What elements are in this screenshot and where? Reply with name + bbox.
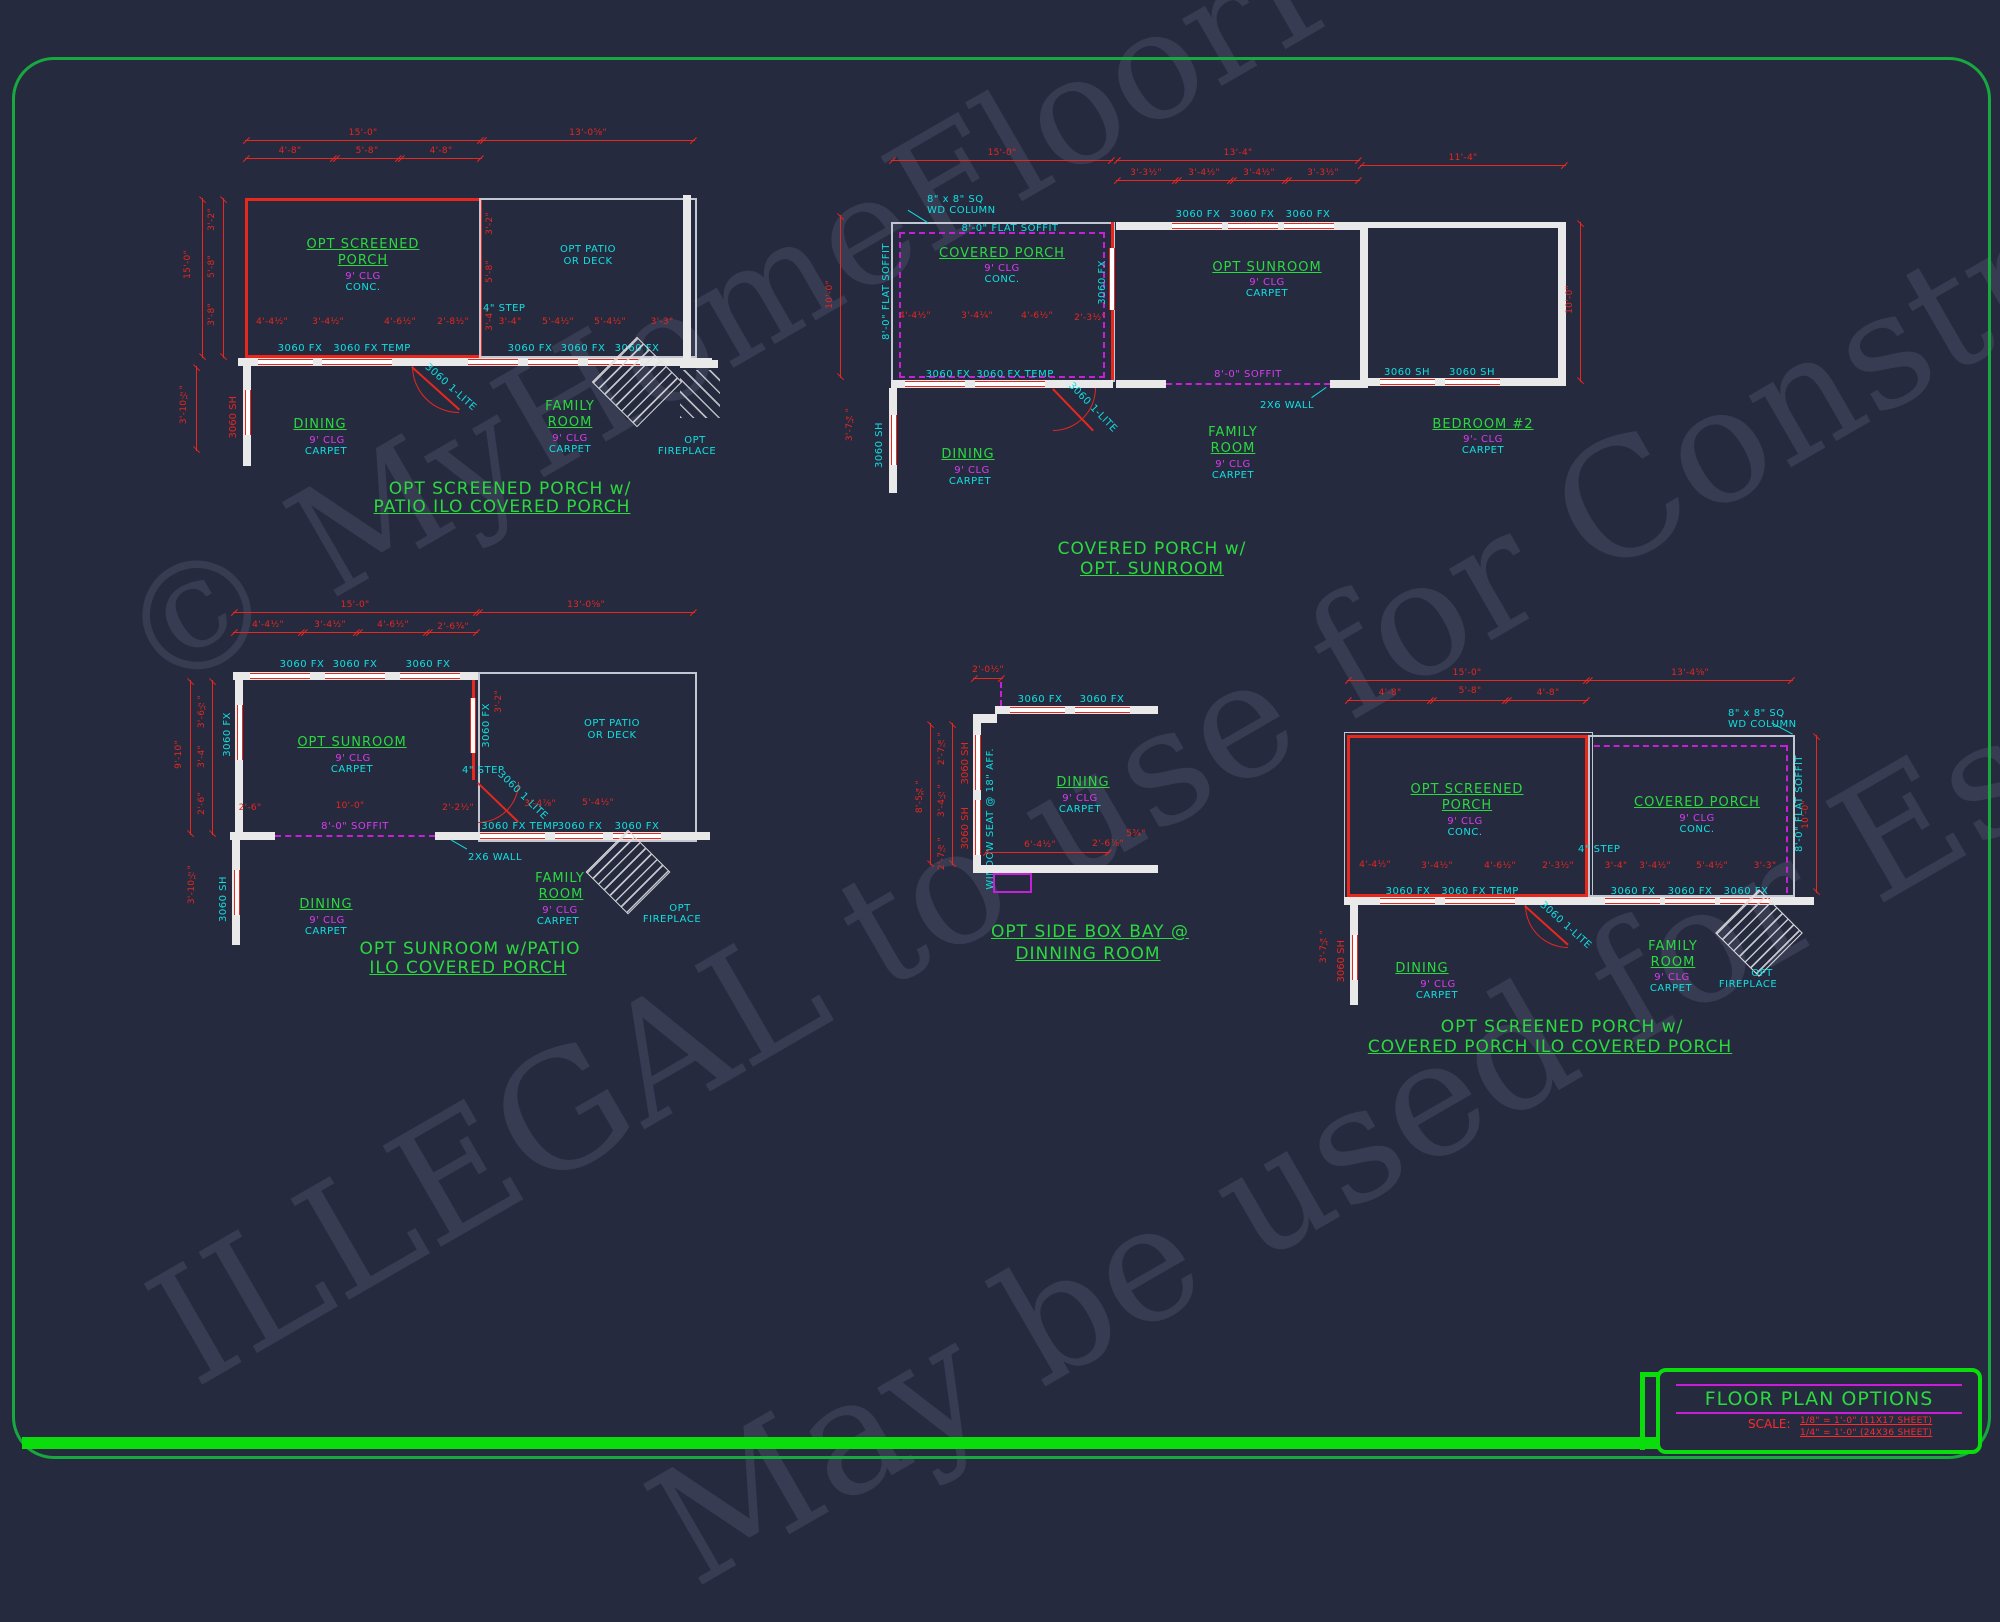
window <box>258 359 313 365</box>
window-label: 3060 FX <box>1018 694 1063 705</box>
floor-note: CARPET <box>1416 990 1458 1001</box>
dimension-label: 15'-0" <box>1453 669 1482 679</box>
dim-line <box>1116 180 1177 181</box>
dimension-label: 3'-4½" <box>1421 862 1453 872</box>
window-label: 3060 FX TEMP <box>481 821 559 832</box>
sheet-title: FLOOR PLAN OPTIONS <box>1705 1389 1934 1410</box>
ceiling-note: 9' CLG <box>984 263 1020 274</box>
floor-note: CONC. <box>1680 824 1715 835</box>
window <box>975 381 1045 387</box>
wall-note: 2X6 WALL <box>1260 400 1314 411</box>
dim-line <box>233 632 303 633</box>
ceiling-note: 9' CLG <box>1062 793 1098 804</box>
dimension-label: 2'-7⅞" <box>938 837 948 870</box>
ceiling-note: 9' CLG <box>1679 813 1715 824</box>
floor-note: CARPET <box>305 446 347 457</box>
scale-value: 1/4" = 1'-0" (24X36 SHEET) <box>1800 1429 1932 1439</box>
window <box>322 359 392 365</box>
house-wall <box>680 360 718 368</box>
room-label: OPT SUNROOM <box>297 736 406 750</box>
room-label: BEDROOM #2 <box>1432 418 1533 432</box>
dim-line <box>245 158 335 159</box>
dimension-label: 3'-2" <box>208 208 218 231</box>
column-note: WD COLUMN <box>927 205 996 216</box>
room-label: DINING <box>299 898 352 912</box>
dimension-label: 3'-4" <box>198 745 208 768</box>
room-label: FAMILY <box>1648 940 1698 954</box>
dimension-label: 2'-3½" <box>1542 862 1574 872</box>
dimension-label: 8'-5¾" <box>916 780 926 813</box>
ceiling-note: 9' CLG <box>542 905 578 916</box>
window <box>470 698 476 753</box>
window-label: 3060 FX <box>406 659 451 670</box>
window-label: 3060 FX <box>615 821 660 832</box>
dim-line <box>1116 160 1360 161</box>
dimension-label: 3'-4½" <box>1639 862 1671 872</box>
dimension-label: 10'-0" <box>826 280 836 309</box>
dimension-label: 3'-4½" <box>938 784 948 817</box>
soffit-note: 8'-0" FLAT SOFFIT <box>881 243 892 340</box>
room-label: DINING <box>293 418 346 432</box>
ceiling-note: 9' CLG <box>1215 459 1251 470</box>
patio-label: OPT PATIO <box>584 718 640 729</box>
window <box>1284 223 1334 229</box>
dimension-label: 4'-8" <box>1379 689 1402 699</box>
dimension-label: 2'-0½" <box>972 666 1004 676</box>
ceiling-note: 9' CLG <box>309 435 345 446</box>
window <box>1075 707 1130 713</box>
room-label: ROOM <box>1211 442 1256 456</box>
window <box>480 833 545 839</box>
titleblock-rule <box>1676 1412 1962 1414</box>
ceiling-note: 9'- CLG <box>1463 434 1503 445</box>
dimension-label: 3'-4½" <box>1243 169 1275 179</box>
dim-line <box>985 852 1110 853</box>
dimension-label: 3'-10½" <box>188 865 198 904</box>
window <box>325 673 385 679</box>
dim-line <box>973 678 1003 679</box>
caption-line-2: DINNING ROOM <box>1015 945 1160 964</box>
dimension-label: 4'-8" <box>279 147 302 157</box>
window <box>528 359 578 365</box>
dim-line <box>1347 680 1588 681</box>
window-label: 3060 FX <box>280 659 325 670</box>
dimension-label: 4'-6½" <box>377 621 409 631</box>
fireplace-note: FIREPLACE <box>643 914 701 925</box>
window <box>1605 898 1660 904</box>
dimension-label: 9'-10" <box>175 740 185 769</box>
dimension-label: 3'-8" <box>208 303 218 326</box>
dimension-label: 5'-4½" <box>594 318 626 328</box>
soffit-dashed <box>1166 383 1330 385</box>
dimension-label: 3'-4½" <box>1188 169 1220 179</box>
dim-line <box>952 723 953 865</box>
window-label: 3060 FX <box>1230 209 1275 220</box>
window-label: 3060 FX <box>926 369 971 380</box>
dim-line <box>891 160 1113 161</box>
dim-line <box>358 632 428 633</box>
dimension-label: 4'-6½" <box>384 318 416 328</box>
window-label: 3060 FX <box>508 343 553 354</box>
wall <box>1330 380 1368 388</box>
window-label: 3060 SH <box>1449 367 1495 378</box>
dim-line <box>212 680 213 835</box>
dim-line <box>400 158 482 159</box>
dimension-label: 3'-4¼" <box>961 312 993 322</box>
floor-note: CARPET <box>1650 983 1692 994</box>
dim-line <box>1287 180 1360 181</box>
dimension-label: 10'-0" <box>1566 285 1576 314</box>
soffit-note: 8'-0" SOFFIT <box>321 821 389 832</box>
room-label: ROOM <box>539 888 584 902</box>
dimension-label: 3'-7¼" <box>1320 930 1330 963</box>
dimension-label: 5'-8" <box>208 255 218 278</box>
dimension-label: 3'-10½" <box>180 385 190 424</box>
window-label: 3060 FX <box>1097 260 1108 305</box>
ceiling-note: 9' CLG <box>335 753 371 764</box>
dim-line <box>1588 680 1793 681</box>
ceiling-note: 9' CLG <box>1249 277 1285 288</box>
soffit-note: 8'-0" SOFFIT <box>1214 369 1282 380</box>
floor-note: CARPET <box>1462 445 1504 456</box>
dimension-label: 15'-0" <box>988 149 1017 159</box>
caption-line-1: COVERED PORCH w/ <box>1058 540 1247 559</box>
window-label: 3060 FX <box>278 343 323 354</box>
dim-line <box>190 680 191 835</box>
dim-line <box>478 612 695 613</box>
window <box>1228 223 1278 229</box>
room-label: OPT SCREENED <box>1411 783 1524 797</box>
caption-line-1: OPT SIDE BOX BAY @ <box>991 923 1189 942</box>
window-label: 3060 FX TEMP <box>976 369 1054 380</box>
window <box>975 735 981 790</box>
house-wall <box>1368 222 1566 228</box>
dimension-label: 5'-4½" <box>1696 862 1728 872</box>
floor-note: CONC. <box>346 282 381 293</box>
fireplace-note: OPT <box>669 903 691 914</box>
dim-line <box>930 723 931 865</box>
window <box>250 673 310 679</box>
room-label: COVERED PORCH <box>939 247 1065 261</box>
floor-note: CONC. <box>985 274 1020 285</box>
plan-screened-covered-porch: 15'-0" 13'-4⅝" 4'-8" 5'-8" 4'-8" 8" x 8"… <box>1300 650 1860 1070</box>
floor-note: CONC. <box>1448 827 1483 838</box>
wall <box>1116 380 1166 388</box>
step-note: 4" STEP <box>483 303 525 314</box>
dimension-label: 4'-8" <box>430 147 453 157</box>
dimension-label: 3'-7¼" <box>846 408 856 441</box>
leader-line <box>1311 387 1327 398</box>
window <box>1352 935 1358 980</box>
ceiling-note: 9' CLG <box>1447 816 1483 827</box>
dimension-label: 3'-2" <box>486 212 496 235</box>
dimension-label: 2'-8½" <box>437 318 469 328</box>
dimension-label: 10'-0" <box>1802 800 1812 829</box>
dim-line <box>1816 735 1817 893</box>
caption-line-1: OPT SCREENED PORCH w/ <box>1441 1018 1684 1037</box>
dimension-label: 2'-3½" <box>1074 314 1106 324</box>
caption-line-2: OPT. SUNROOM <box>1080 560 1224 579</box>
dimension-label: 5¾" <box>1126 830 1146 840</box>
dim-line <box>202 198 203 358</box>
room-label: OPT SUNROOM <box>1212 261 1321 275</box>
dimension-label: 3'-4" <box>1605 862 1628 872</box>
dimension-label: 3'-6½" <box>198 695 208 728</box>
step-note: 4" STEP <box>1578 844 1620 855</box>
window-label: 3060 FX TEMP <box>333 343 411 354</box>
window-label: 3060 FX <box>1080 694 1125 705</box>
floor-note: CARPET <box>305 926 347 937</box>
floor-note: CARPET <box>331 764 373 775</box>
dimension-label: 3'-3" <box>651 318 674 328</box>
floor-note: CARPET <box>549 444 591 455</box>
dimension-label: 11'-4" <box>1449 154 1478 164</box>
window-label: 3060 FX <box>1386 886 1431 897</box>
dim-line <box>233 612 478 613</box>
plan-screened-porch-patio: 15'-0" 13'-0⅝" 4'-8" 5'-8" 4'-8" 15'-0" … <box>150 100 770 520</box>
dimension-label: 13'-0⅝" <box>567 601 605 611</box>
dim-line <box>1232 180 1287 181</box>
dimension-label: 4'-8" <box>1537 689 1560 699</box>
dimension-label: 4'-4½" <box>256 318 288 328</box>
plan-sunroom-patio: 15'-0" 13'-0⅝" 4'-4½" 3'-4½" 4'-6½" 2'-6… <box>150 590 790 990</box>
dim-line <box>1507 700 1588 701</box>
dimension-label: 5'-8" <box>1459 687 1482 697</box>
dim-line <box>1360 165 1566 166</box>
titleblock-connector <box>1640 1372 1645 1450</box>
caption-line-2: COVERED PORCH ILO COVERED PORCH <box>1368 1038 1732 1057</box>
dimension-label: 13'-4⅝" <box>1671 669 1709 679</box>
dimension-label: 3'-3" <box>1754 862 1777 872</box>
window-label: 3060 SH <box>218 876 229 922</box>
ceiling-note: 9' CLG <box>552 433 588 444</box>
window-label: 3060 FX <box>333 659 378 670</box>
wall-note: 2X6 WALL <box>468 852 522 863</box>
soffit-note: 8'-0" FLAT SOFFIT <box>961 223 1058 234</box>
dimension-label: 3'-4½" <box>314 621 346 631</box>
ceiling-note: 9' CLG <box>1420 979 1456 990</box>
room-label: COVERED PORCH <box>1634 796 1760 810</box>
soffit-dashed <box>275 835 435 837</box>
dim-line <box>482 140 695 141</box>
room-label: DINING <box>1395 962 1448 976</box>
window-seat-outline <box>993 873 1032 893</box>
window-label: 3060 FX <box>1611 886 1656 897</box>
window <box>905 381 965 387</box>
dim-line <box>1580 222 1581 382</box>
room-label: ROOM <box>1651 956 1696 970</box>
scale-label: SCALE: <box>1748 1418 1791 1431</box>
dimension-label: 15'-0" <box>184 250 194 279</box>
wall <box>230 832 275 840</box>
dimension-label: 4'-4½" <box>1359 861 1391 871</box>
room-label: ROOM <box>548 416 593 430</box>
window-label: 3060 FX <box>1176 209 1221 220</box>
caption-line-1: OPT SUNROOM w/PATIO <box>360 940 581 959</box>
window-label: 3060 SH <box>874 422 885 468</box>
dimension-label: 5'-8" <box>486 260 496 283</box>
dim-line <box>1347 700 1432 701</box>
dimension-label: 3'-3½" <box>1307 169 1339 179</box>
caption-line-2: ILO COVERED PORCH <box>369 959 566 978</box>
room-label: PORCH <box>338 254 388 268</box>
dim-line <box>1177 180 1232 181</box>
soffit-dashed <box>1594 745 1786 747</box>
dimension-label: 2'-7⅞" <box>938 732 948 765</box>
leader-line <box>451 840 467 850</box>
window <box>555 833 603 839</box>
window <box>1380 379 1435 385</box>
dim-line <box>303 632 358 633</box>
room-label: OPT SCREENED <box>307 238 420 252</box>
window <box>1010 707 1065 713</box>
titleblock-rule <box>1676 1384 1962 1386</box>
window-label: 3060 SH <box>1384 367 1430 378</box>
room-label: FAMILY <box>535 872 585 886</box>
window-label: 3060 SH <box>1336 940 1347 983</box>
deck-hatch <box>680 370 720 418</box>
window <box>891 415 897 465</box>
dimension-label: 4'-4½" <box>899 312 931 322</box>
dim-line <box>1432 700 1507 701</box>
ceiling-note: 9' CLG <box>345 271 381 282</box>
window <box>237 705 243 760</box>
fireplace-symbol <box>586 830 671 915</box>
dimension-label: 2'-2½" <box>442 804 474 814</box>
plan-covered-porch-sunroom: 10'-0" 8'-0" FLAT SOFFIT 8'-0" FLAT SOFF… <box>680 140 1600 600</box>
window <box>234 870 240 915</box>
dimension-label: 5'-8" <box>356 147 379 157</box>
floor-note: CARPET <box>1059 804 1101 815</box>
ceiling-note: 9' CLG <box>309 915 345 926</box>
window <box>1380 898 1435 904</box>
window-label: 3060 FX <box>222 712 233 757</box>
window <box>400 673 460 679</box>
window-label: 3060 SH <box>228 396 239 439</box>
floor-note: CARPET <box>1212 470 1254 481</box>
soffit-dashed <box>1786 745 1788 893</box>
dim-line <box>840 215 841 378</box>
room-label: DINING <box>1056 776 1109 790</box>
dimension-label: 4'-6½" <box>1484 862 1516 872</box>
dimension-label: 3'-4⅞" <box>524 800 556 810</box>
ceiling-note: 9' CLG <box>1654 972 1690 983</box>
dimension-label: 2'-6" <box>198 792 208 815</box>
dim-line <box>223 198 224 358</box>
dimension-label: 13'-4" <box>1224 149 1253 159</box>
dimension-label: 10'-0" <box>336 802 365 812</box>
dimension-label: 6'-4½" <box>1024 841 1056 851</box>
dimension-label: 4'-4½" <box>252 621 284 631</box>
dimension-label: 3'-3½" <box>1130 169 1162 179</box>
window-label: 3060 FX <box>561 343 606 354</box>
fireplace-note: FIREPLACE <box>1719 979 1777 990</box>
column-note: 8" x 8" SQ <box>1728 708 1785 719</box>
caption-line-2: PATIO ILO COVERED PORCH <box>374 498 631 517</box>
caption-line-1: OPT SCREENED PORCH w/ <box>389 480 632 499</box>
dim-line <box>245 140 482 141</box>
cad-sheet: { "colors":{"red":"#e8271d","green":"#2b… <box>0 0 2000 1500</box>
window <box>1172 223 1222 229</box>
wall <box>1360 222 1368 388</box>
window <box>975 800 981 855</box>
dimension-label: 2'-6⅞" <box>1092 840 1124 850</box>
dimension-label: 3'-4" <box>499 318 522 328</box>
dimension-label: 15'-0" <box>349 129 378 139</box>
dimension-label: 5'-4½" <box>542 318 574 328</box>
room-label: FAMILY <box>545 400 595 414</box>
floor-note: CARPET <box>1246 288 1288 299</box>
window-label: 3060 SH <box>960 742 971 785</box>
window-label: 3060 FX <box>1668 886 1713 897</box>
exterior-wall <box>973 865 1158 873</box>
dimension-label: 13'-0⅝" <box>569 129 607 139</box>
column-note: 8" x 8" SQ <box>927 194 984 205</box>
floor-note: CARPET <box>537 916 579 927</box>
window <box>468 359 518 365</box>
room-label: DINING <box>941 448 994 462</box>
window <box>1665 898 1715 904</box>
patio-label: OR DECK <box>587 730 636 741</box>
house-wall <box>683 195 691 367</box>
fireplace-note: OPT <box>1751 968 1773 979</box>
dimension-label: 4'-6½" <box>1021 312 1053 322</box>
title-block: FLOOR PLAN OPTIONS SCALE: 1/8" = 1'-0" (… <box>1656 1368 1982 1454</box>
dim-line <box>196 366 197 451</box>
window <box>1109 248 1115 310</box>
ceiling-note: 9' CLG <box>954 465 990 476</box>
soffit-dashed <box>1000 682 1002 706</box>
floor-note: CARPET <box>949 476 991 487</box>
dim-line <box>335 158 400 159</box>
window <box>245 390 251 435</box>
window <box>1445 379 1500 385</box>
scale-value: 1/8" = 1'-0" (11X17 SHEET) <box>1800 1417 1932 1427</box>
window-label: 3060 SH <box>960 807 971 850</box>
column-note: WD COLUMN <box>1728 719 1797 730</box>
room-label: PORCH <box>1442 799 1492 813</box>
dimension-label: 3'-4½" <box>312 318 344 328</box>
wall <box>973 714 997 723</box>
patio-label: OR DECK <box>563 256 612 267</box>
plan-side-box-bay: 2'-0½" 3060 FX 3060 FX 3060 SH 3060 SH W… <box>890 640 1220 970</box>
dimension-label: 5'-4½" <box>582 799 614 809</box>
window <box>1445 898 1515 904</box>
window-label: 3060 FX TEMP <box>1441 886 1519 897</box>
dimension-label: 2'-6" <box>239 804 262 814</box>
window-label: 3060 FX <box>558 821 603 832</box>
patio-label: OPT PATIO <box>560 244 616 255</box>
dimension-label: 15'-0" <box>341 601 370 611</box>
dimension-label: 2'-6¾" <box>437 623 469 633</box>
patio-outline <box>479 198 697 358</box>
window-label: 3060 FX <box>1286 209 1331 220</box>
room-label: FAMILY <box>1208 426 1258 440</box>
